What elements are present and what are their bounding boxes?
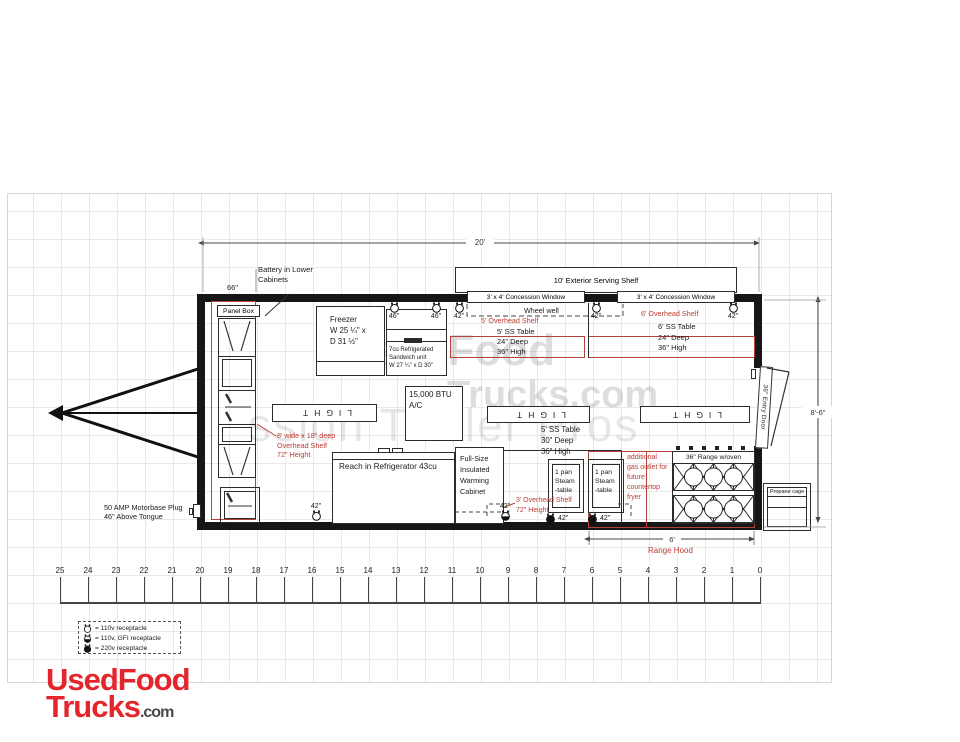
ss-table-5ft-30-l3: 36" High	[541, 446, 580, 457]
legend-text: = 110v receptacle	[95, 625, 147, 632]
range-knob	[689, 446, 693, 450]
range-hood-label: Range Hood	[648, 546, 693, 555]
lower-cabinets	[218, 318, 256, 478]
receptacle-110v: 42"	[584, 302, 608, 320]
wall-right-upper	[754, 294, 762, 368]
cabinet-divider	[219, 356, 255, 357]
ss-table-5ft-l3: 36" High	[497, 347, 535, 357]
receptacle-label: 42"	[311, 503, 321, 510]
steam-table-2-label: 1 pan Steam -table	[595, 468, 615, 495]
freezer-label-l3: D 31 ½"	[330, 336, 366, 347]
entry-door-label: 36" Entry Door	[759, 385, 769, 431]
ruler-tick: 10	[466, 566, 494, 603]
receptacle-220v-icon	[83, 644, 92, 653]
gas-l3: future	[627, 473, 667, 483]
range-knob	[741, 446, 745, 450]
ruler-tick: 4	[634, 566, 662, 603]
receptacle-110v: 42"	[447, 302, 471, 320]
warming-l4: Cabinet	[460, 486, 490, 497]
receptacle-110v-icon	[431, 302, 442, 313]
range-label: 36" Range w/oven	[673, 452, 754, 461]
warming-l1: Full-Size	[460, 453, 490, 464]
ss-table-6ft-l2: 24" Deep	[658, 333, 696, 344]
ruler-tick: 2	[690, 566, 718, 603]
logo-line2: Trucks.com	[46, 693, 190, 726]
floor-plan-canvas: UsedFood Trucks.com ssion Trailer Pros 1…	[0, 0, 960, 742]
receptacle-gfi: 42"	[493, 503, 517, 521]
battery-note-line2: Cabinets	[258, 275, 288, 284]
range-knob	[676, 446, 680, 450]
front-section-dim: 66"	[227, 283, 238, 292]
ruler-tick: 9	[494, 566, 522, 603]
concession-window-2: 3' x 4' Concession Window	[617, 291, 735, 303]
panel-box-label: Panel Box	[223, 308, 254, 315]
ceiling-light-3: LIGHT	[640, 406, 750, 423]
ruler-tick: 8	[522, 566, 550, 603]
ceiling-light-1: LIGHT	[272, 404, 377, 422]
panel-box: Panel Box	[217, 305, 260, 317]
ruler-tick: 0	[746, 566, 774, 603]
freezer-label-l2: W 25 ¼" x	[330, 325, 366, 336]
ruler-tick: 1	[718, 566, 746, 603]
receptacle-label: 42"	[728, 313, 738, 320]
receptacle-110v-icon	[311, 510, 322, 521]
steam-l3: -table	[595, 486, 615, 495]
receptacle-110v-icon	[728, 302, 739, 313]
steam-l1: 1 pan	[595, 468, 615, 477]
dim-6ft-label: 6'	[663, 533, 681, 545]
freezer-label: Freezer W 25 ¼" x D 31 ½"	[330, 314, 366, 347]
receptacle-110v-icon	[454, 302, 465, 313]
propane-cage-label: Propane cage	[768, 488, 806, 497]
overhead-shelf-5ft-label: 5' Overhead Shelf	[481, 316, 538, 325]
ruler-tick: 18	[242, 566, 270, 603]
range-knob	[715, 446, 719, 450]
cabinet-divider	[219, 390, 255, 391]
sandwich-divider	[387, 329, 446, 330]
reach-in-label: Reach in Refrigerator 43cu	[339, 462, 437, 471]
receptacle-label: 46"	[431, 313, 441, 320]
legend-row-gfi: = 110v, GFI receptacle	[83, 633, 180, 643]
receptacle-label: 42"	[500, 503, 510, 510]
cabinet-divider	[219, 444, 255, 445]
steam-l2: Steam	[595, 477, 615, 486]
motorbase-note-line1: 50 AMP Motorbase Plug	[104, 503, 183, 512]
range-burners-icon	[673, 463, 754, 523]
freezer-label-l1: Freezer	[330, 314, 366, 325]
ruler-tick: 25	[46, 566, 74, 603]
ruler-tick: 22	[130, 566, 158, 603]
receptacle-legend: = 110v receptacle = 110v, GFI receptacle…	[78, 621, 181, 654]
logo-suffix: .com	[140, 704, 173, 721]
receptacle-label: 42"	[558, 515, 568, 522]
receptacle-label: 46"	[389, 313, 399, 320]
receptacle-label: 42"	[591, 313, 601, 320]
warming-l3: Warming	[460, 475, 490, 486]
ss-table-6ft-l1: 6' SS Table	[658, 322, 696, 333]
gas-outlet-note: additional gas outlet for future counter…	[627, 453, 667, 503]
exterior-serving-shelf: 10' Exterior Serving Shelf	[455, 267, 737, 293]
ruler-tick: 13	[382, 566, 410, 603]
receptacle-220v: 42"	[545, 513, 568, 524]
ss-table-6ft-l3: 36" High	[658, 343, 696, 354]
sandwich-label: 7cu Refrigerated Sandwich unit W 27 ¼" x…	[389, 346, 433, 370]
ac-label-l2: A/C	[409, 401, 452, 412]
overhead-shelf-8ft-label: 8' wide x 18" deep Overhead Shelf 72" He…	[277, 431, 335, 460]
door-strike	[751, 369, 756, 379]
dim-20ft-label: 20'	[466, 237, 494, 248]
concession-window-2-label: 3' x 4' Concession Window	[637, 294, 715, 301]
usedfoodtrucks-logo: UsedFood Trucks.com	[46, 666, 190, 726]
cabinet-drawer	[222, 359, 252, 387]
ruler-tick: 20	[186, 566, 214, 603]
ruler-tick: 6	[578, 566, 606, 603]
motorbase-note-line2: 46" Above Tongue	[104, 512, 163, 521]
propane-cage-inner: Propane cage	[767, 487, 807, 527]
ruler-tick: 16	[298, 566, 326, 603]
gas-l2: gas outlet for	[627, 463, 667, 473]
receptacle-110v: 46"	[382, 302, 406, 320]
wheel-well-label: Wheel well	[524, 306, 559, 315]
overhead-shelf-3ft-l1: 3' Overhead Shelf	[516, 496, 572, 506]
ruler-tick: 11	[438, 566, 466, 603]
battery-note-line1: Battery in Lower	[258, 265, 313, 274]
ruler-tick: 15	[326, 566, 354, 603]
sandwich-label-l3: W 27 ¼" x D 30"	[389, 362, 433, 370]
light-label: LIGHT	[297, 408, 352, 418]
ac-label-l1: 15,000 BTU	[409, 390, 452, 401]
ruler-tick: 12	[410, 566, 438, 603]
sandwich-handle	[404, 338, 422, 343]
receptacle-110v-icon	[83, 624, 92, 633]
ruler-tick: 24	[74, 566, 102, 603]
motorbase-plug-pin-icon	[189, 508, 193, 515]
ss-table-5ft-30-l1: 5' SS Table	[541, 424, 580, 435]
ruler-tick: 23	[102, 566, 130, 603]
ss-table-6ft-label: 6' SS Table 24" Deep 36" High	[658, 322, 696, 354]
dim-86-label: 8'-6"	[802, 406, 834, 418]
ruler-tick: 7	[550, 566, 578, 603]
fridge-top-line	[333, 459, 454, 460]
receptacle-220v-icon	[587, 513, 598, 524]
steam-l1: 1 pan	[555, 468, 575, 477]
range-knob	[728, 446, 732, 450]
logo-trucks: Trucks	[46, 689, 140, 724]
ruler-tick: 17	[270, 566, 298, 603]
receptacle-110v: 42"	[721, 302, 745, 320]
receptacle-label: 42"	[454, 313, 464, 320]
gas-l4: countertop	[627, 483, 667, 493]
legend-text: = 220v receptacle	[95, 645, 147, 652]
ruler-tick: 5	[606, 566, 634, 603]
ruler-tick: 3	[662, 566, 690, 603]
gas-l1: additional	[627, 453, 667, 463]
exterior-serving-shelf-label: 10' Exterior Serving Shelf	[554, 276, 638, 285]
ruler-tick: 19	[214, 566, 242, 603]
steam-l3: -table	[555, 486, 575, 495]
cabinet-drawer	[222, 427, 252, 442]
receptacle-gfi-icon	[83, 634, 92, 643]
steam-table-1-label: 1 pan Steam -table	[555, 468, 575, 495]
motorbase-plug-icon	[193, 504, 201, 518]
ss-table-5ft-l1: 5' SS Table	[497, 327, 535, 337]
concession-window-1-label: 3' x 4' Concession Window	[487, 294, 565, 301]
receptacle-gfi-icon	[500, 510, 511, 521]
concession-window-1: 3' x 4' Concession Window	[467, 291, 585, 303]
ruler-tick: 21	[158, 566, 186, 603]
freezer-divider	[317, 361, 384, 362]
overhead-shelf-8ft-l1: 8' wide x 18" deep	[277, 431, 335, 441]
cabinet-divider	[219, 424, 255, 425]
ac-label: 15,000 BTU A/C	[409, 390, 452, 411]
overhead-shelf-8ft-l3: 72" Height	[277, 450, 335, 460]
gas-l5: fryer	[627, 493, 667, 503]
legend-text: = 110v, GFI receptacle	[95, 635, 161, 642]
ruler-tick: 14	[354, 566, 382, 603]
ss-table-5ft-30-l2: 30" Deep	[541, 435, 580, 446]
ss-table-5ft-l2: 24" Deep	[497, 337, 535, 347]
legend-row-110v: = 110v receptacle	[83, 623, 180, 633]
wall-right-lower	[754, 446, 762, 530]
sandwich-label-l1: 7cu Refrigerated	[389, 346, 433, 354]
receptacle-110v: 42"	[304, 503, 328, 521]
receptacle-220v: 42"	[587, 513, 610, 524]
light-label: LIGHT	[511, 410, 566, 420]
warming-cabinet-label: Full-Size Insulated Warming Cabinet	[460, 453, 490, 497]
light-label: LIGHT	[667, 410, 722, 420]
receptacle-label: 42"	[600, 515, 610, 522]
steam-l2: Steam	[555, 477, 575, 486]
sandwich-label-l2: Sandwich unit	[389, 354, 433, 362]
legend-row-220v: = 220v receptacle	[83, 643, 180, 653]
warming-l2: Insulated	[460, 464, 490, 475]
wall-left	[197, 294, 205, 530]
propane-shelf-line	[768, 497, 806, 508]
receptacle-110v-icon	[591, 302, 602, 313]
overhead-shelf-6ft-label: 6' Overhead Shelf	[641, 309, 698, 318]
receptacle-110v-icon	[389, 302, 400, 313]
receptacle-110v: 46"	[424, 302, 448, 320]
ss-table-5ft-label: 5' SS Table 24" Deep 36" High	[497, 327, 535, 357]
receptacle-220v-icon	[545, 513, 556, 524]
overhead-shelf-8ft-l2: Overhead Shelf	[277, 441, 335, 451]
ss-table-5ft-30-label: 5' SS Table 30" Deep 36" High	[541, 424, 580, 457]
ceiling-light-2: LIGHT	[487, 406, 590, 423]
range-knob	[702, 446, 706, 450]
lower-cabinet-rear-inner	[224, 491, 256, 519]
